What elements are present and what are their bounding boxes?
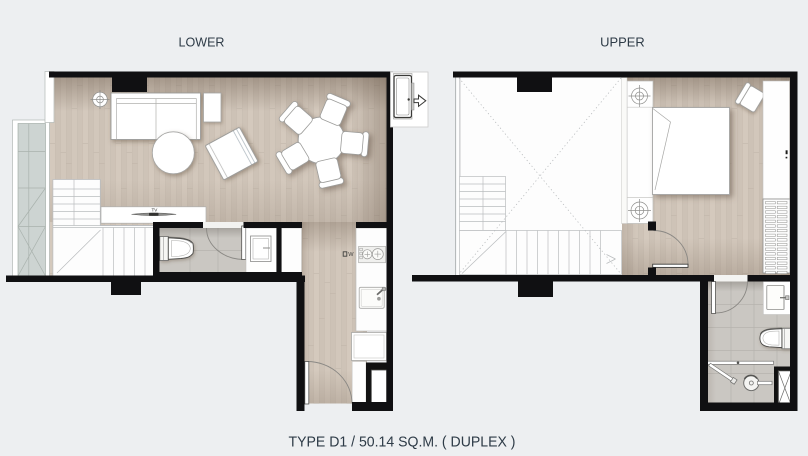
svg-text:LOWER: LOWER [179, 35, 225, 50]
svg-text:TYPE D1 / 50.14 SQ.M. ( DUPLEX: TYPE D1 / 50.14 SQ.M. ( DUPLEX ) [289, 435, 516, 451]
svg-text:W: W [348, 252, 354, 258]
svg-text:TV: TV [152, 208, 159, 213]
svg-text:UPPER: UPPER [600, 35, 645, 50]
